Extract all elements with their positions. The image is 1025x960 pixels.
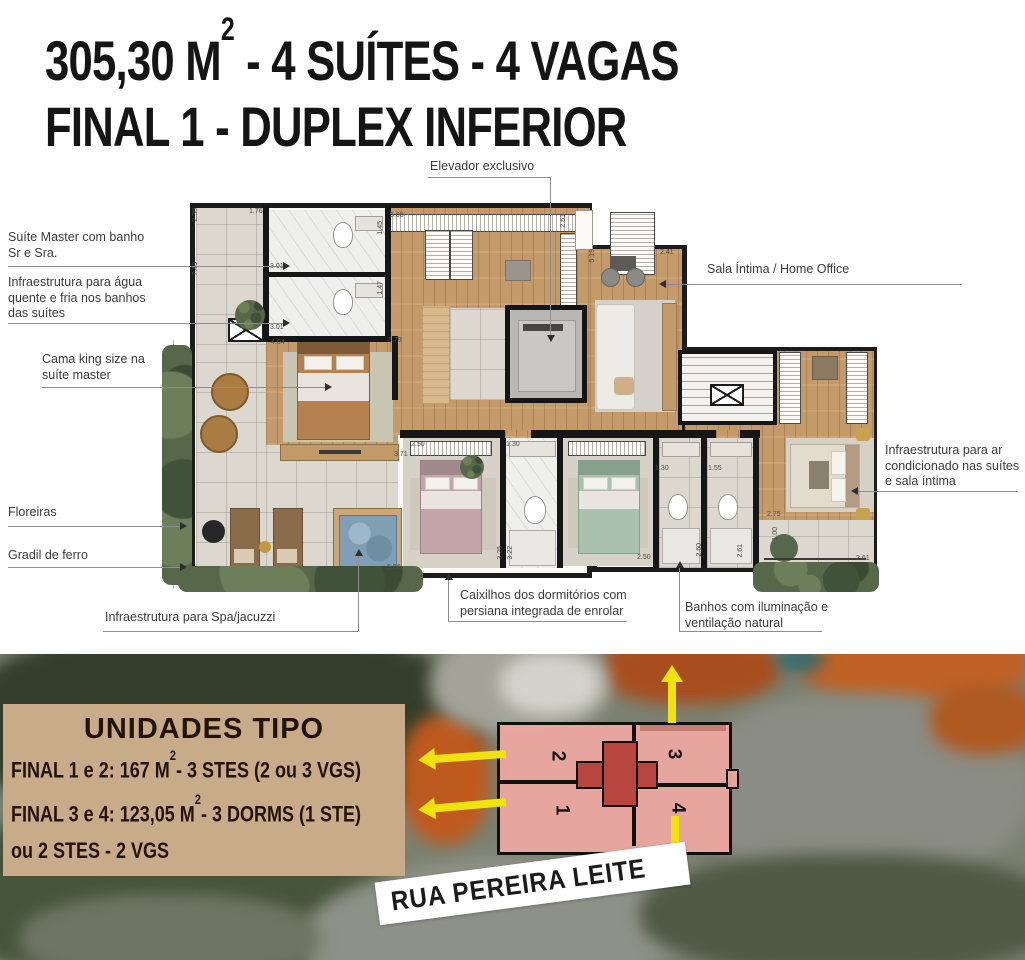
- pillow: [425, 477, 450, 490]
- bath3-toilet: [718, 494, 738, 520]
- hall-ottoman: [505, 260, 531, 281]
- lounge-chair: [230, 508, 260, 572]
- pillow: [831, 478, 846, 502]
- tv-sideboard: [662, 303, 677, 411]
- callout-line: [448, 580, 449, 621]
- bedroom1-window: [410, 441, 492, 456]
- bath1-sink: [509, 441, 556, 457]
- pillow: [453, 477, 478, 490]
- info-line-3: ou 2 STES - 2 VGS: [11, 838, 169, 864]
- footprint-shade: [640, 725, 726, 731]
- lounge-pillow: [277, 549, 297, 563]
- pillow: [611, 477, 636, 490]
- bath1-toilet: [524, 496, 546, 524]
- right-arrow-icon: [283, 319, 290, 327]
- callout-line: [8, 526, 180, 527]
- callout-label: Sala Íntima / Home Office: [707, 262, 849, 278]
- right-arrow-icon: [180, 522, 187, 530]
- photo-orange-building: [400, 714, 490, 844]
- planter-bottom-right: [753, 562, 879, 592]
- pillow: [583, 477, 608, 490]
- unit-label-2: 2: [546, 751, 568, 762]
- elevator-shaft: [505, 305, 587, 403]
- callout-label: Infraestrutura para água quente e fria n…: [8, 275, 146, 322]
- unit-label-3: 3: [662, 749, 684, 760]
- terrace-rail: [764, 558, 866, 560]
- bath-toilet: [333, 289, 353, 315]
- info-line-2: FINAL 3 e 4: 123,05 M2- 3 DORMS (1 STE): [11, 800, 361, 828]
- bath3-sink: [710, 442, 752, 457]
- left-arrow-icon: [851, 487, 858, 495]
- callout-line: [428, 177, 550, 178]
- spa-jacuzzi: [339, 515, 397, 567]
- bath2-sink: [662, 442, 700, 457]
- pillow: [304, 356, 332, 370]
- closet-column-2: [450, 230, 473, 280]
- down-arrow-icon: [547, 335, 555, 342]
- callout-label: Caixilhos dos dormitórios com persiana i…: [460, 588, 627, 619]
- suite4-headboard: [845, 445, 859, 507]
- planter-bottom: [178, 566, 423, 592]
- callout-line: [8, 323, 283, 324]
- info-line-1-text: FINAL 1 e 2: 167 M: [11, 758, 170, 783]
- callout-line: [858, 491, 1018, 492]
- right-arrow-icon: [283, 262, 290, 270]
- bath-sink: [355, 283, 383, 298]
- building-footprint: 2 1 3 4: [497, 722, 732, 855]
- callout-line: [42, 387, 325, 388]
- callout-label: Infraestrutura para Spa/jacuzzi: [105, 610, 275, 626]
- master-bed: [297, 338, 370, 440]
- info-line-1-exponent: 2: [170, 747, 176, 763]
- arrow-shaft: [434, 750, 506, 763]
- pillow: [831, 451, 846, 475]
- desk-chair: [601, 268, 620, 287]
- ottoman: [614, 377, 634, 395]
- bedroom2-bed: [578, 460, 640, 554]
- info-line-1-rest: - 3 STES (2 ou 3 VGS): [176, 758, 361, 783]
- wall: [268, 272, 385, 277]
- arrow-shaft: [434, 798, 506, 812]
- callout-label: Infraestrutura para ar condicionado nas …: [885, 443, 1019, 490]
- stair-void-box: [710, 384, 744, 406]
- callout-label: Cama king size na suíte master: [42, 352, 145, 383]
- bath3-shower: [710, 528, 752, 564]
- bed-sheet: [579, 491, 639, 509]
- callout-line: [103, 631, 358, 632]
- info-line-2-exponent: 2: [195, 791, 201, 807]
- callout-line: [666, 284, 962, 285]
- right-arrow-icon: [180, 563, 187, 571]
- title-area-exponent: 2: [221, 11, 235, 47]
- units-info-box: UNIDADES TIPO FINAL 1 e 2: 167 M2- 3 STE…: [3, 704, 405, 876]
- callout-label: Suíte Master com banho Sr e Sra.: [8, 230, 144, 261]
- flyer-page: 305,30 M2 - 4 SUÍTES - 4 VAGAS FINAL 1 -…: [0, 0, 1025, 960]
- bed-throw: [809, 461, 829, 489]
- wall: [392, 336, 398, 400]
- left-arrow-icon: [659, 280, 666, 288]
- hall-cabinet: [423, 306, 449, 404]
- closet-column-1: [425, 230, 450, 280]
- round-table: [202, 520, 225, 543]
- headboard: [579, 461, 639, 475]
- callout-line: [679, 568, 680, 631]
- lounge-pillow: [234, 549, 254, 563]
- bath1-shower: [509, 530, 556, 566]
- wall: [753, 438, 759, 568]
- up-arrow-icon: [445, 573, 453, 580]
- suite4-chair: [812, 356, 838, 380]
- photo-roofs: [930, 684, 1025, 754]
- callout-label: Gradil de ferro: [8, 548, 88, 564]
- info-line-2-text: FINAL 3 e 4: 123,05 M: [11, 802, 195, 827]
- tree: [235, 300, 265, 330]
- suite4-bed: [790, 444, 860, 508]
- photo-roofs: [600, 654, 780, 704]
- suite4-wardrobe: [779, 352, 801, 424]
- outdoor-counter: [280, 444, 399, 461]
- side-table: [259, 541, 271, 553]
- door-gap: [716, 430, 740, 438]
- wall: [400, 430, 760, 438]
- unit-label-4: 4: [666, 803, 688, 814]
- core-fill: [606, 765, 634, 785]
- plant: [460, 455, 484, 479]
- up-arrow-icon: [676, 561, 684, 568]
- callout-line: [448, 621, 627, 622]
- rattan-chair: [200, 415, 238, 453]
- rattan-chair: [211, 373, 249, 411]
- bedroom2-window: [568, 441, 646, 456]
- callout-line: [8, 266, 283, 267]
- callout-label: Banhos com iluminação e ventilação natur…: [685, 600, 828, 631]
- footprint-tab: [726, 769, 739, 789]
- photo-white-building: [500, 654, 600, 714]
- callout-label: Floreiras: [8, 505, 57, 521]
- service-door: [575, 210, 593, 250]
- elevator-door: [523, 324, 563, 331]
- unit-label-1: 1: [550, 805, 572, 816]
- info-line-1: FINAL 1 e 2: 167 M2- 3 STES (2 ou 3 VGS): [11, 756, 361, 784]
- spa-deck: [333, 508, 402, 572]
- callout-line: [358, 556, 359, 631]
- right-arrow-icon: [325, 383, 332, 391]
- bath-sink: [355, 216, 383, 231]
- desk-chair: [626, 268, 645, 287]
- pillow: [336, 356, 364, 370]
- callout-line: [679, 631, 822, 632]
- lounge-chair: [273, 508, 303, 572]
- photo-trees: [20, 894, 320, 960]
- wall: [263, 336, 391, 342]
- bath2-toilet: [668, 494, 688, 520]
- callout-line: [8, 567, 180, 568]
- nightstand: [856, 428, 870, 441]
- top-closet-strip: [388, 214, 577, 232]
- info-line-2-rest: - 3 DORMS (1 STE): [201, 802, 361, 827]
- wall: [385, 205, 391, 341]
- elevator-foyer-floor: [450, 308, 507, 400]
- page-title-line2: FINAL 1 - DUPLEX INFERIOR: [45, 94, 627, 159]
- page-title-line1: 305,30 M2 - 4 SUÍTES - 4 VAGAS: [45, 28, 679, 93]
- up-arrow-icon: [355, 549, 363, 556]
- grill: [319, 450, 361, 454]
- door-gap: [505, 430, 531, 438]
- arrow-shaft: [668, 680, 676, 723]
- arrowhead: [417, 748, 435, 771]
- title-area: 305,30 M: [45, 29, 221, 92]
- callout-line: [550, 177, 551, 335]
- bath-toilet: [333, 222, 353, 248]
- photo-pool: [775, 654, 825, 671]
- photo-trees: [640, 854, 1025, 960]
- info-box-title: UNIDADES TIPO: [3, 713, 405, 746]
- suite4-wardrobe: [846, 352, 868, 424]
- title-suffix: - 4 SUÍTES - 4 VAGAS: [235, 29, 679, 92]
- bath2-shower: [662, 528, 700, 564]
- callout-label: Elevador exclusivo: [430, 159, 534, 175]
- direction-arrow-up-icon: [661, 665, 683, 723]
- planter-left: [162, 345, 192, 585]
- bed-sheet: [421, 491, 481, 509]
